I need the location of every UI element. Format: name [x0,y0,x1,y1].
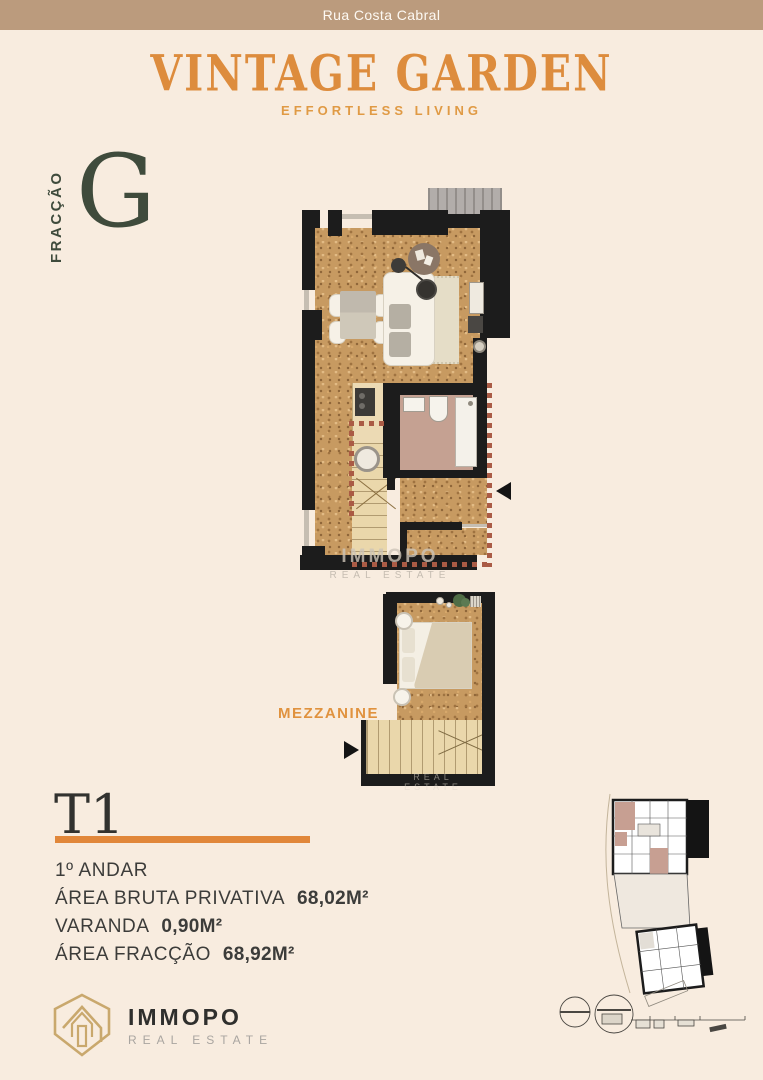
floor-lamp [416,279,437,300]
brand-shield-icon [50,992,114,1058]
dining-table [340,291,376,339]
accent-rule [55,836,310,843]
door-hall [462,524,487,527]
cooktop-burner [359,393,365,399]
corridor-floor [315,383,353,555]
area-row: VARANDA 0,90M² [55,916,222,938]
wall-left-1 [302,228,315,290]
watermark-sub-mezz: REAL ESTATE [383,772,483,792]
site-key-plan [550,788,755,1043]
pillow [402,628,415,653]
mezzanine-stairs [366,720,483,774]
shower-drain [468,401,473,406]
area-row: ÁREA BRUTA PRIVATIVA 68,02M² [55,888,369,910]
window-left [304,290,309,310]
pillow [402,657,415,682]
wall-kitchen-bath-divider [383,383,400,478]
plant-icon [461,598,470,607]
courtyard [614,874,690,928]
mezzanine-outline-dashed [487,383,492,567]
wall-cabinet-dark [468,316,483,333]
hall-floor [400,478,487,524]
watermark-brand: IMMOPO [315,546,465,568]
area-label: VARANDA [55,916,150,937]
cooktop [355,388,375,416]
coffee-table-dark [391,258,406,273]
window-top [342,214,372,219]
shower-tray [455,397,477,467]
mezzanine-label: MEZZANINE [278,705,379,722]
lower-building [637,923,715,993]
deco-dot [446,602,452,608]
wall-left-3 [302,340,315,510]
wall-top-1 [302,210,320,228]
door-handle [473,340,486,353]
main-floorplan: IMMOPO REAL ESTATE [285,188,513,578]
highlighted-unit [615,802,635,830]
deco-dot [436,597,444,605]
mezz-wall-left [383,594,397,684]
wall-top-2 [372,210,448,235]
brand-subtitle: REAL ESTATE [128,1033,273,1047]
bathroom-sink [403,397,425,412]
fraction-letter: G [76,142,156,242]
brand-logo: IMMOPO REAL ESTATE [50,992,273,1058]
project-tagline: EFFORTLESS LIVING [0,103,763,118]
mezzanine-entry-arrow-icon [344,741,359,759]
wall-left-2 [302,310,322,340]
area-row: ÁREA FRACÇÃO 68,92M² [55,944,295,966]
scale-bar [602,1014,745,1032]
mezz-wall-right [482,592,495,774]
wall-top-pillar [328,210,342,236]
area-label: ÁREA BRUTA PRIVATIVA [55,888,285,909]
door-mat [470,596,481,607]
watermark-sub: REAL ESTATE [315,570,465,581]
pouf [395,612,413,630]
mezzanine-outline-dashed [349,421,354,521]
site-plan-graphic [550,788,755,1043]
area-label: ÁREA FRACÇÃO [55,944,211,965]
street-banner: Rua Costa Cabral [0,0,763,30]
area-value: 68,02M² [297,888,369,909]
wall-hall [400,522,462,530]
area-value: 68,92M² [223,944,295,965]
entry-arrow-icon [496,482,511,500]
fraction-label: FRACÇÃO [48,163,65,263]
kitchen-sink [354,446,380,472]
floor-label: 1º ANDAR [55,860,148,882]
mezzanine-floorplan: REAL ESTATE [358,592,495,788]
typology-label: T1 [54,788,124,842]
wall-stair-nook [387,470,395,490]
sofa-cushion [389,332,411,357]
project-title: VINTAGE GARDEN [0,44,763,92]
mezzanine-outline-dashed [349,421,385,426]
brand-name: IMMOPO [128,1004,273,1031]
mezz-wall-left-low [361,720,366,774]
wall-bathroom-bottom [400,470,487,478]
wall-shelf [469,282,484,314]
sofa-cushion [389,304,411,329]
street-name: Rua Costa Cabral [323,7,441,23]
pouf [393,688,411,706]
area-value: 0,90M² [161,916,222,937]
window-left-2 [304,510,309,546]
cooktop-burner [359,403,365,409]
adjacent-mass [687,800,709,858]
mezzanine-bed [399,622,472,689]
toilet [429,396,448,422]
wall-right-top [480,210,510,338]
blanket [413,622,472,689]
highlighted-unit [615,832,627,846]
